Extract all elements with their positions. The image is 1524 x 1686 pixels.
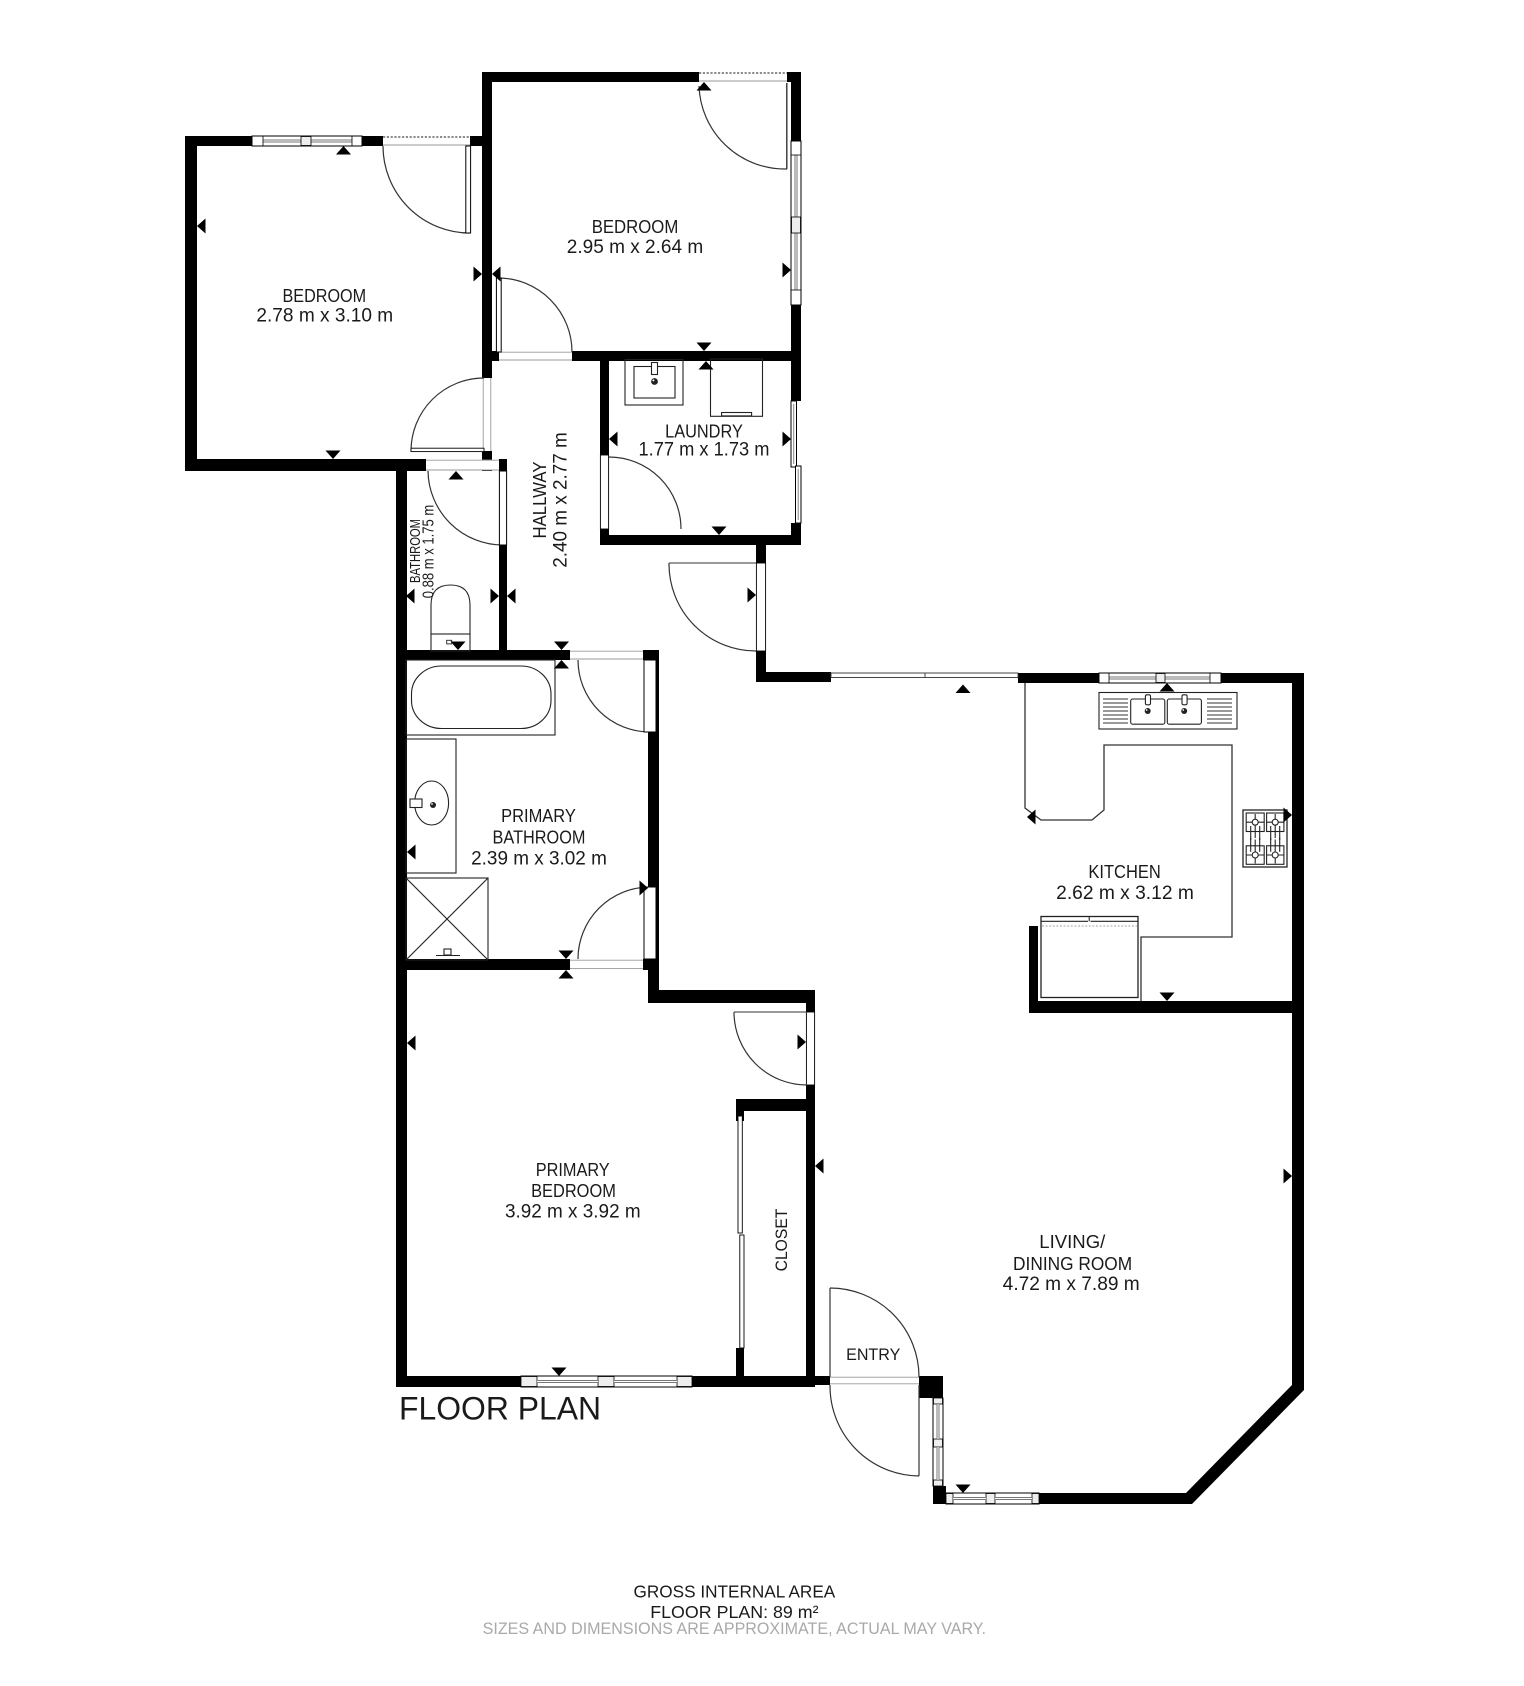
svg-text:PRIMARY: PRIMARY xyxy=(501,806,576,826)
svg-text:2.39 m x 3.02 m: 2.39 m x 3.02 m xyxy=(471,849,607,870)
svg-text:LAUNDRY: LAUNDRY xyxy=(665,422,743,442)
svg-text:LIVING/: LIVING/ xyxy=(1039,1232,1105,1252)
svg-text:4.72 m x 7.89 m: 4.72 m x 7.89 m xyxy=(1003,1274,1140,1295)
svg-text:2.62 m x 3.12 m: 2.62 m x 3.12 m xyxy=(1056,883,1194,904)
svg-text:BATHROOM: BATHROOM xyxy=(493,828,586,848)
svg-text:SIZES AND DIMENSIONS ARE APPRO: SIZES AND DIMENSIONS ARE APPROXIMATE, AC… xyxy=(483,1620,986,1638)
svg-text:2.40 m x 2.77 m: 2.40 m x 2.77 m xyxy=(551,432,572,568)
svg-text:PRIMARY: PRIMARY xyxy=(536,1160,610,1180)
svg-text:BEDROOM: BEDROOM xyxy=(283,286,367,306)
svg-text:KITCHEN: KITCHEN xyxy=(1088,862,1160,882)
svg-text:3.92 m x 3.92 m: 3.92 m x 3.92 m xyxy=(505,1202,641,1223)
svg-text:DINING ROOM: DINING ROOM xyxy=(1013,1254,1132,1274)
svg-text:0.88 m x 1.75 m: 0.88 m x 1.75 m xyxy=(421,505,438,599)
svg-text:2.95 m x 2.64 m: 2.95 m x 2.64 m xyxy=(567,237,704,258)
svg-text:BEDROOM: BEDROOM xyxy=(531,1181,616,1201)
svg-text:GROSS INTERNAL AREA: GROSS INTERNAL AREA xyxy=(634,1582,836,1602)
svg-text:2.78 m x 3.10 m: 2.78 m x 3.10 m xyxy=(256,306,393,327)
svg-text:FLOOR PLAN: FLOOR PLAN xyxy=(399,1391,601,1427)
svg-text:CLOSET: CLOSET xyxy=(772,1209,791,1272)
svg-text:HALLWAY: HALLWAY xyxy=(530,462,550,539)
svg-text:1.77 m x 1.73 m: 1.77 m x 1.73 m xyxy=(639,440,770,461)
svg-text:ENTRY: ENTRY xyxy=(846,1346,900,1364)
svg-text:BEDROOM: BEDROOM xyxy=(592,217,679,237)
svg-text:FLOOR PLAN: 89 m²: FLOOR PLAN: 89 m² xyxy=(650,1602,818,1622)
